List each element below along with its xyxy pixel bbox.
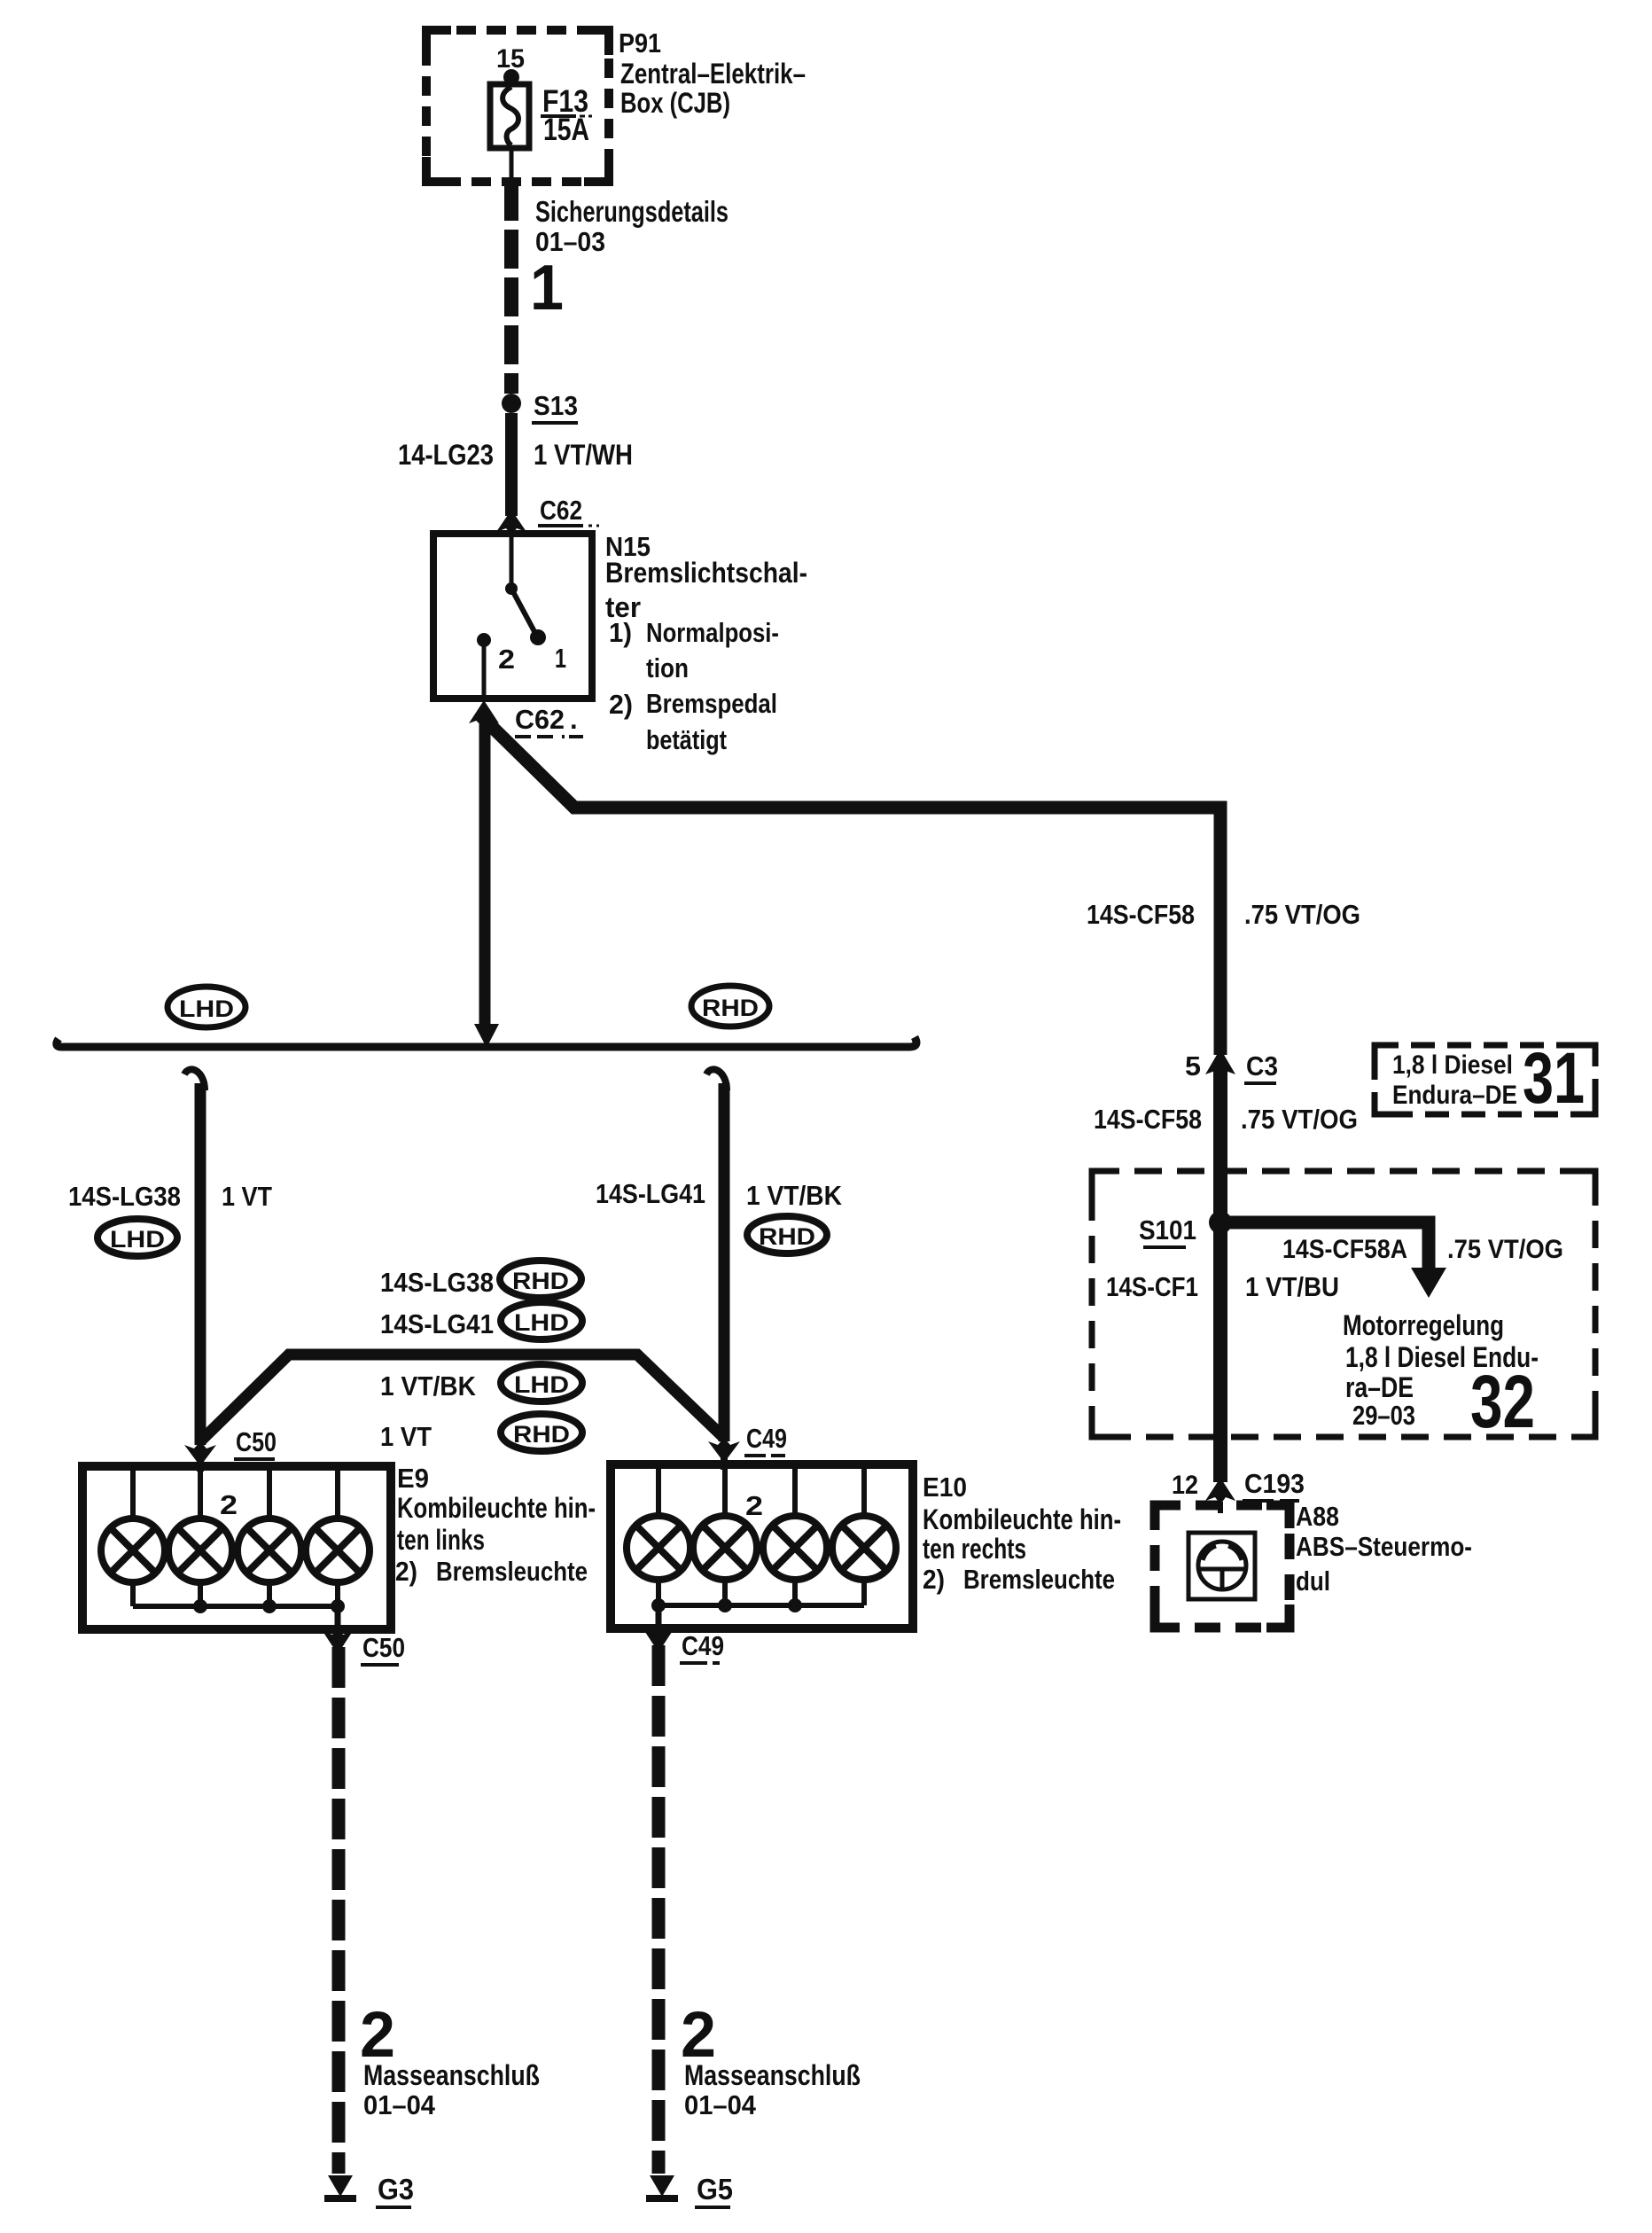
svg-text:A88: A88	[1296, 1501, 1339, 1532]
svg-text:1: 1	[555, 643, 566, 674]
svg-text:.75 VT/OG: .75 VT/OG	[1241, 1104, 1358, 1135]
svg-text:2): 2)	[923, 1564, 945, 1595]
svg-text:C49: C49	[682, 1630, 724, 1661]
svg-text:S101: S101	[1139, 1214, 1196, 1245]
svg-text:2): 2)	[609, 689, 633, 720]
svg-text:Motorregelung: Motorregelung	[1343, 1309, 1504, 1341]
svg-text:1 VT: 1 VT	[222, 1181, 272, 1212]
svg-text:1,8 l Diesel: 1,8 l Diesel	[1392, 1050, 1513, 1080]
svg-text:31: 31	[1523, 1038, 1585, 1119]
svg-text:14S-CF58: 14S-CF58	[1094, 1104, 1202, 1135]
svg-text:14S-LG41: 14S-LG41	[380, 1308, 494, 1339]
svg-text:C62: C62	[540, 495, 582, 526]
svg-text:G5: G5	[697, 2173, 733, 2206]
svg-text:5: 5	[1185, 1050, 1201, 1081]
svg-text:Bremsleuchte: Bremsleuchte	[436, 1556, 588, 1587]
svg-text:1 VT/BK: 1 VT/BK	[746, 1180, 843, 1211]
svg-text:RHD: RHD	[702, 995, 759, 1021]
svg-text:Kombileuchte hin-: Kombileuchte hin-	[397, 1492, 596, 1524]
svg-text:E9: E9	[397, 1463, 429, 1494]
svg-text:Masseanschluß: Masseanschluß	[684, 2059, 861, 2091]
svg-text:Bremslichtschal-: Bremslichtschal-	[605, 557, 807, 589]
svg-text:C193: C193	[1244, 1468, 1305, 1499]
svg-text:2): 2)	[395, 1556, 417, 1587]
svg-text:Sicherungsdetails: Sicherungsdetails	[535, 195, 729, 228]
svg-text:2: 2	[745, 1490, 763, 1521]
svg-text:C3: C3	[1246, 1050, 1278, 1081]
svg-text:14-LG23: 14-LG23	[398, 439, 494, 471]
svg-text:1: 1	[530, 253, 564, 324]
svg-text:S13: S13	[534, 390, 578, 421]
svg-text:12: 12	[1172, 1471, 1198, 1500]
svg-text:1): 1)	[609, 617, 632, 648]
svg-text:RHD: RHD	[512, 1268, 569, 1294]
svg-text:Normalposi-: Normalposi-	[646, 617, 779, 648]
svg-text:Box (CJB): Box (CJB)	[620, 87, 730, 119]
svg-text:01–04: 01–04	[684, 2089, 757, 2120]
svg-text:tion: tion	[646, 652, 689, 683]
svg-text:1 VT/BU: 1 VT/BU	[1245, 1271, 1339, 1302]
svg-text:1 VT/WH: 1 VT/WH	[534, 439, 633, 471]
svg-text:LHD: LHD	[514, 1309, 569, 1336]
svg-text:14S-CF1: 14S-CF1	[1106, 1271, 1198, 1302]
svg-text:P91: P91	[619, 27, 661, 59]
svg-text:LHD: LHD	[110, 1226, 165, 1253]
svg-text:betätigt: betätigt	[646, 724, 727, 755]
svg-text:ra–DE: ra–DE	[1345, 1371, 1414, 1403]
svg-text:C49: C49	[746, 1423, 787, 1454]
svg-text:14S-LG41: 14S-LG41	[596, 1178, 705, 1209]
svg-text:LHD: LHD	[179, 995, 234, 1022]
svg-text:ten links: ten links	[397, 1524, 485, 1556]
svg-text:01–04: 01–04	[363, 2089, 436, 2120]
svg-text:LHD: LHD	[514, 1371, 569, 1398]
svg-text:14S-CF58: 14S-CF58	[1087, 899, 1195, 930]
svg-text:Zentral–Elektrik–: Zentral–Elektrik–	[620, 58, 806, 90]
svg-text:ABS–Steuermo-: ABS–Steuermo-	[1296, 1531, 1472, 1562]
svg-text:C50: C50	[236, 1426, 277, 1457]
svg-text:2: 2	[220, 1489, 238, 1520]
svg-text:2: 2	[498, 644, 515, 675]
svg-text:C50: C50	[362, 1632, 405, 1663]
svg-text:.75 VT/OG: .75 VT/OG	[1447, 1235, 1563, 1264]
svg-text:Endura–DE: Endura–DE	[1392, 1081, 1517, 1110]
svg-text:E10: E10	[923, 1472, 967, 1503]
svg-text:15A: 15A	[543, 113, 589, 147]
svg-text:1 VT/BK: 1 VT/BK	[380, 1370, 477, 1401]
svg-text:RHD: RHD	[513, 1421, 570, 1448]
svg-text:dul: dul	[1296, 1565, 1330, 1597]
svg-text:15: 15	[496, 44, 525, 74]
svg-text:Masseanschluß: Masseanschluß	[363, 2059, 540, 2091]
svg-text:Bremsleuchte: Bremsleuchte	[963, 1564, 1115, 1595]
svg-text:.: .	[570, 704, 578, 735]
svg-text:14S-CF58A: 14S-CF58A	[1282, 1235, 1407, 1264]
svg-text:14S-LG38: 14S-LG38	[380, 1267, 494, 1298]
svg-text:1 VT: 1 VT	[380, 1421, 432, 1452]
svg-text:32: 32	[1470, 1360, 1535, 1443]
svg-text:RHD: RHD	[759, 1223, 815, 1250]
svg-text:29–03: 29–03	[1352, 1400, 1415, 1431]
svg-text:.75 VT/OG: .75 VT/OG	[1244, 899, 1360, 930]
svg-text:C62: C62	[515, 704, 565, 735]
svg-text:Kombileuchte hin-: Kombileuchte hin-	[923, 1503, 1121, 1535]
svg-text:G3: G3	[378, 2173, 414, 2206]
svg-text:ten rechts: ten rechts	[923, 1533, 1026, 1565]
svg-text:Bremspedal: Bremspedal	[646, 688, 777, 719]
svg-text:14S-LG38: 14S-LG38	[68, 1181, 181, 1212]
